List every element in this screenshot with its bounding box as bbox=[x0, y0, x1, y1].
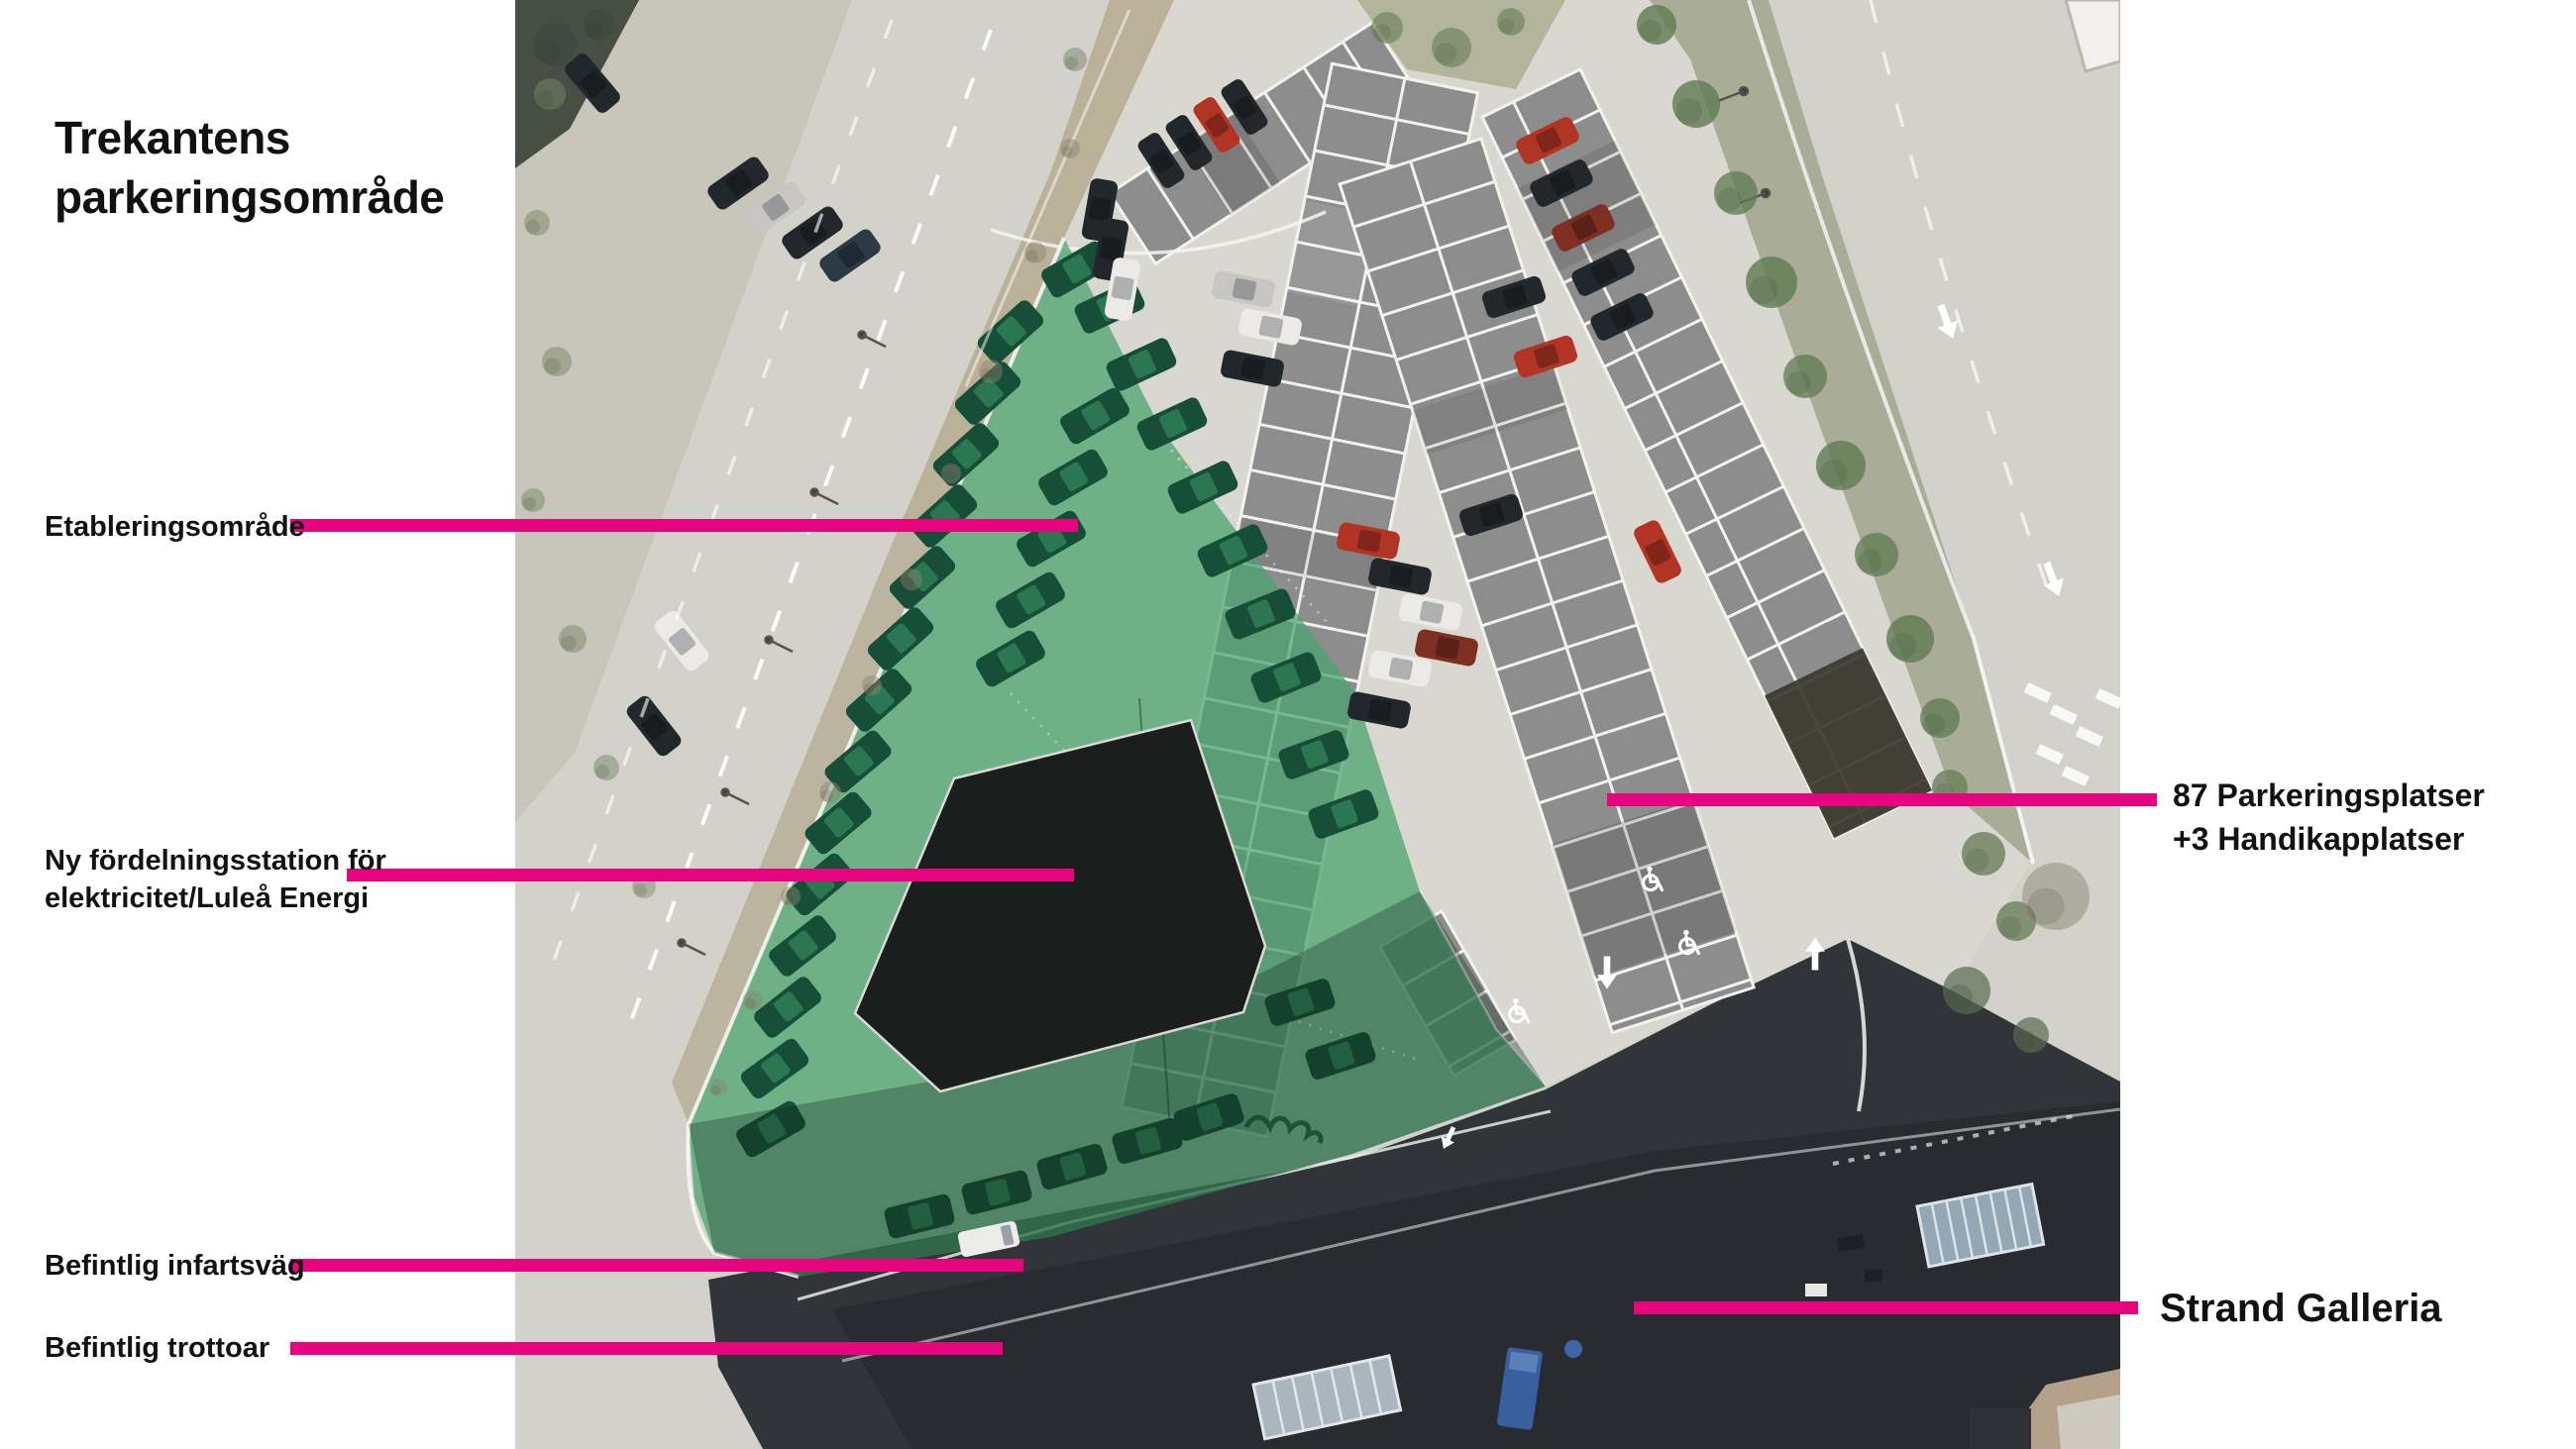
label-strand-galleria: Strand Galleria bbox=[2160, 1285, 2442, 1332]
label-parkeringsplatser-line2: +3 Handikapplatser bbox=[2173, 817, 2485, 861]
label-trottoar: Befintlig trottoar bbox=[45, 1329, 269, 1367]
tree bbox=[901, 569, 922, 590]
tree bbox=[1497, 8, 1525, 36]
tree bbox=[941, 464, 961, 483]
label-parkeringsplatser: 87 Parkeringsplatser +3 Handikapplatser bbox=[2173, 774, 2485, 861]
tree bbox=[1943, 967, 1990, 1014]
tree bbox=[542, 347, 572, 376]
tree bbox=[1783, 355, 1827, 398]
tree bbox=[524, 210, 550, 236]
tree bbox=[1816, 441, 1866, 490]
tree bbox=[1371, 12, 1403, 44]
tree bbox=[1060, 139, 1080, 158]
tree bbox=[743, 990, 763, 1010]
label-fordelningsstation-line2: elektricitet/Luleå Energi bbox=[45, 880, 386, 917]
tree bbox=[1024, 242, 1046, 263]
tree bbox=[521, 488, 545, 512]
tree bbox=[2022, 863, 2090, 930]
tree bbox=[1672, 80, 1720, 128]
tree bbox=[1637, 5, 1676, 45]
label-fordelningsstation-line1: Ny fördelningsstation för bbox=[45, 842, 386, 880]
tree bbox=[819, 781, 841, 803]
tree bbox=[534, 78, 566, 110]
tree bbox=[533, 23, 577, 66]
tree bbox=[584, 9, 615, 41]
tree bbox=[862, 675, 882, 695]
tree bbox=[1855, 533, 1898, 576]
aerial-photo-svg bbox=[515, 0, 2120, 1449]
page-title: Trekantens parkeringsområde bbox=[54, 108, 481, 227]
leader-line-fordelningsstation bbox=[347, 869, 1074, 881]
leader-line-strand-galleria bbox=[1634, 1301, 2138, 1314]
label-etableringsomrade: Etableringsområde bbox=[45, 508, 305, 546]
aerial-photo bbox=[515, 0, 2120, 1449]
tree bbox=[979, 360, 1003, 383]
tree bbox=[1962, 832, 2005, 876]
label-infartsvag: Befintlig infartsväg bbox=[45, 1247, 305, 1285]
tree bbox=[1746, 257, 1797, 308]
site-plan-page: Trekantens parkeringsområde bbox=[0, 0, 2576, 1449]
tree bbox=[593, 755, 619, 780]
label-fordelningsstation: Ny fördelningsstation för elektricitet/L… bbox=[45, 842, 386, 917]
tree bbox=[1714, 171, 1758, 215]
tree bbox=[1063, 48, 1087, 71]
tree bbox=[1886, 615, 1934, 663]
tree bbox=[1920, 698, 1960, 738]
handicap-sign-blue bbox=[1564, 1340, 1582, 1358]
tree bbox=[2013, 1017, 2049, 1053]
tree bbox=[781, 886, 801, 906]
tree bbox=[559, 625, 587, 653]
leader-line-etableringsomrade bbox=[290, 519, 1078, 532]
label-parkeringsplatser-line1: 87 Parkeringsplatser bbox=[2173, 774, 2485, 817]
leader-line-parkeringsplatser bbox=[1607, 793, 2157, 806]
leader-line-trottoar bbox=[290, 1342, 1003, 1355]
tree bbox=[709, 1079, 727, 1096]
tree bbox=[1432, 28, 1471, 67]
building-corner-shed bbox=[1970, 1408, 2031, 1449]
leader-line-infartsvag bbox=[290, 1259, 1023, 1272]
